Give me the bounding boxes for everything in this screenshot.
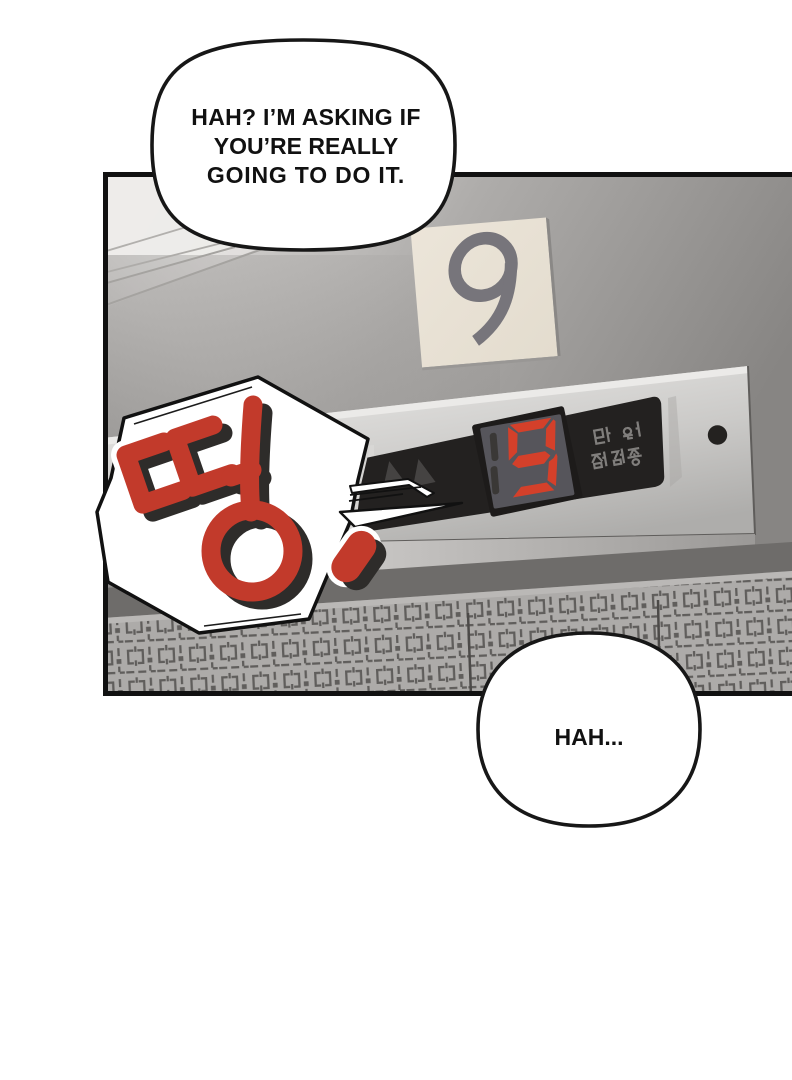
svg-text:HAH...: HAH...: [555, 724, 624, 750]
svg-text:HAH? I’M ASKING IF: HAH? I’M ASKING IF: [191, 104, 420, 130]
svg-text:GOING TO DO IT.: GOING TO DO IT.: [207, 162, 405, 188]
svg-text:YOU’RE REALLY: YOU’RE REALLY: [214, 133, 398, 159]
